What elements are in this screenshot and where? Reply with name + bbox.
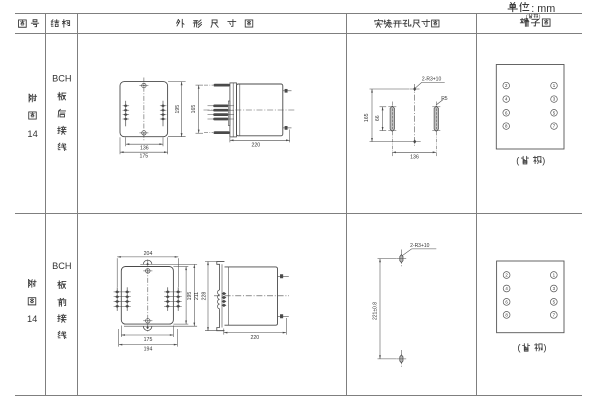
svg-text:(: ( [516, 155, 519, 165]
svg-text:BCH: BCH [52, 261, 71, 271]
svg-text:228: 228 [202, 292, 208, 301]
svg-text:14: 14 [27, 314, 37, 324]
svg-text:): ) [544, 343, 547, 353]
svg-text:66: 66 [375, 115, 381, 121]
svg-text:2-R3+10: 2-R3+10 [422, 77, 442, 83]
svg-text::: : [531, 3, 534, 15]
svg-text:136: 136 [410, 154, 419, 160]
svg-text:165: 165 [364, 113, 370, 122]
svg-text:BCH: BCH [52, 73, 71, 83]
svg-text:(: ( [518, 343, 521, 353]
svg-text:175: 175 [139, 154, 148, 160]
svg-text:220: 220 [251, 143, 260, 149]
svg-text:2-R3+10: 2-R3+10 [410, 243, 430, 249]
svg-text:): ) [542, 155, 545, 165]
svg-text:136: 136 [140, 146, 149, 152]
svg-text:14: 14 [27, 129, 37, 139]
svg-text:194: 194 [144, 346, 153, 352]
svg-text:165: 165 [191, 105, 197, 114]
svg-text:175: 175 [144, 337, 153, 343]
svg-text:R5: R5 [441, 96, 448, 102]
svg-text:195: 195 [175, 105, 181, 114]
svg-text:195: 195 [187, 292, 193, 301]
svg-text:211: 211 [194, 292, 200, 300]
svg-text:mm: mm [537, 3, 555, 15]
svg-text:220: 220 [250, 335, 259, 341]
svg-text:204: 204 [144, 251, 153, 257]
svg-text:221±0.8: 221±0.8 [372, 302, 378, 320]
